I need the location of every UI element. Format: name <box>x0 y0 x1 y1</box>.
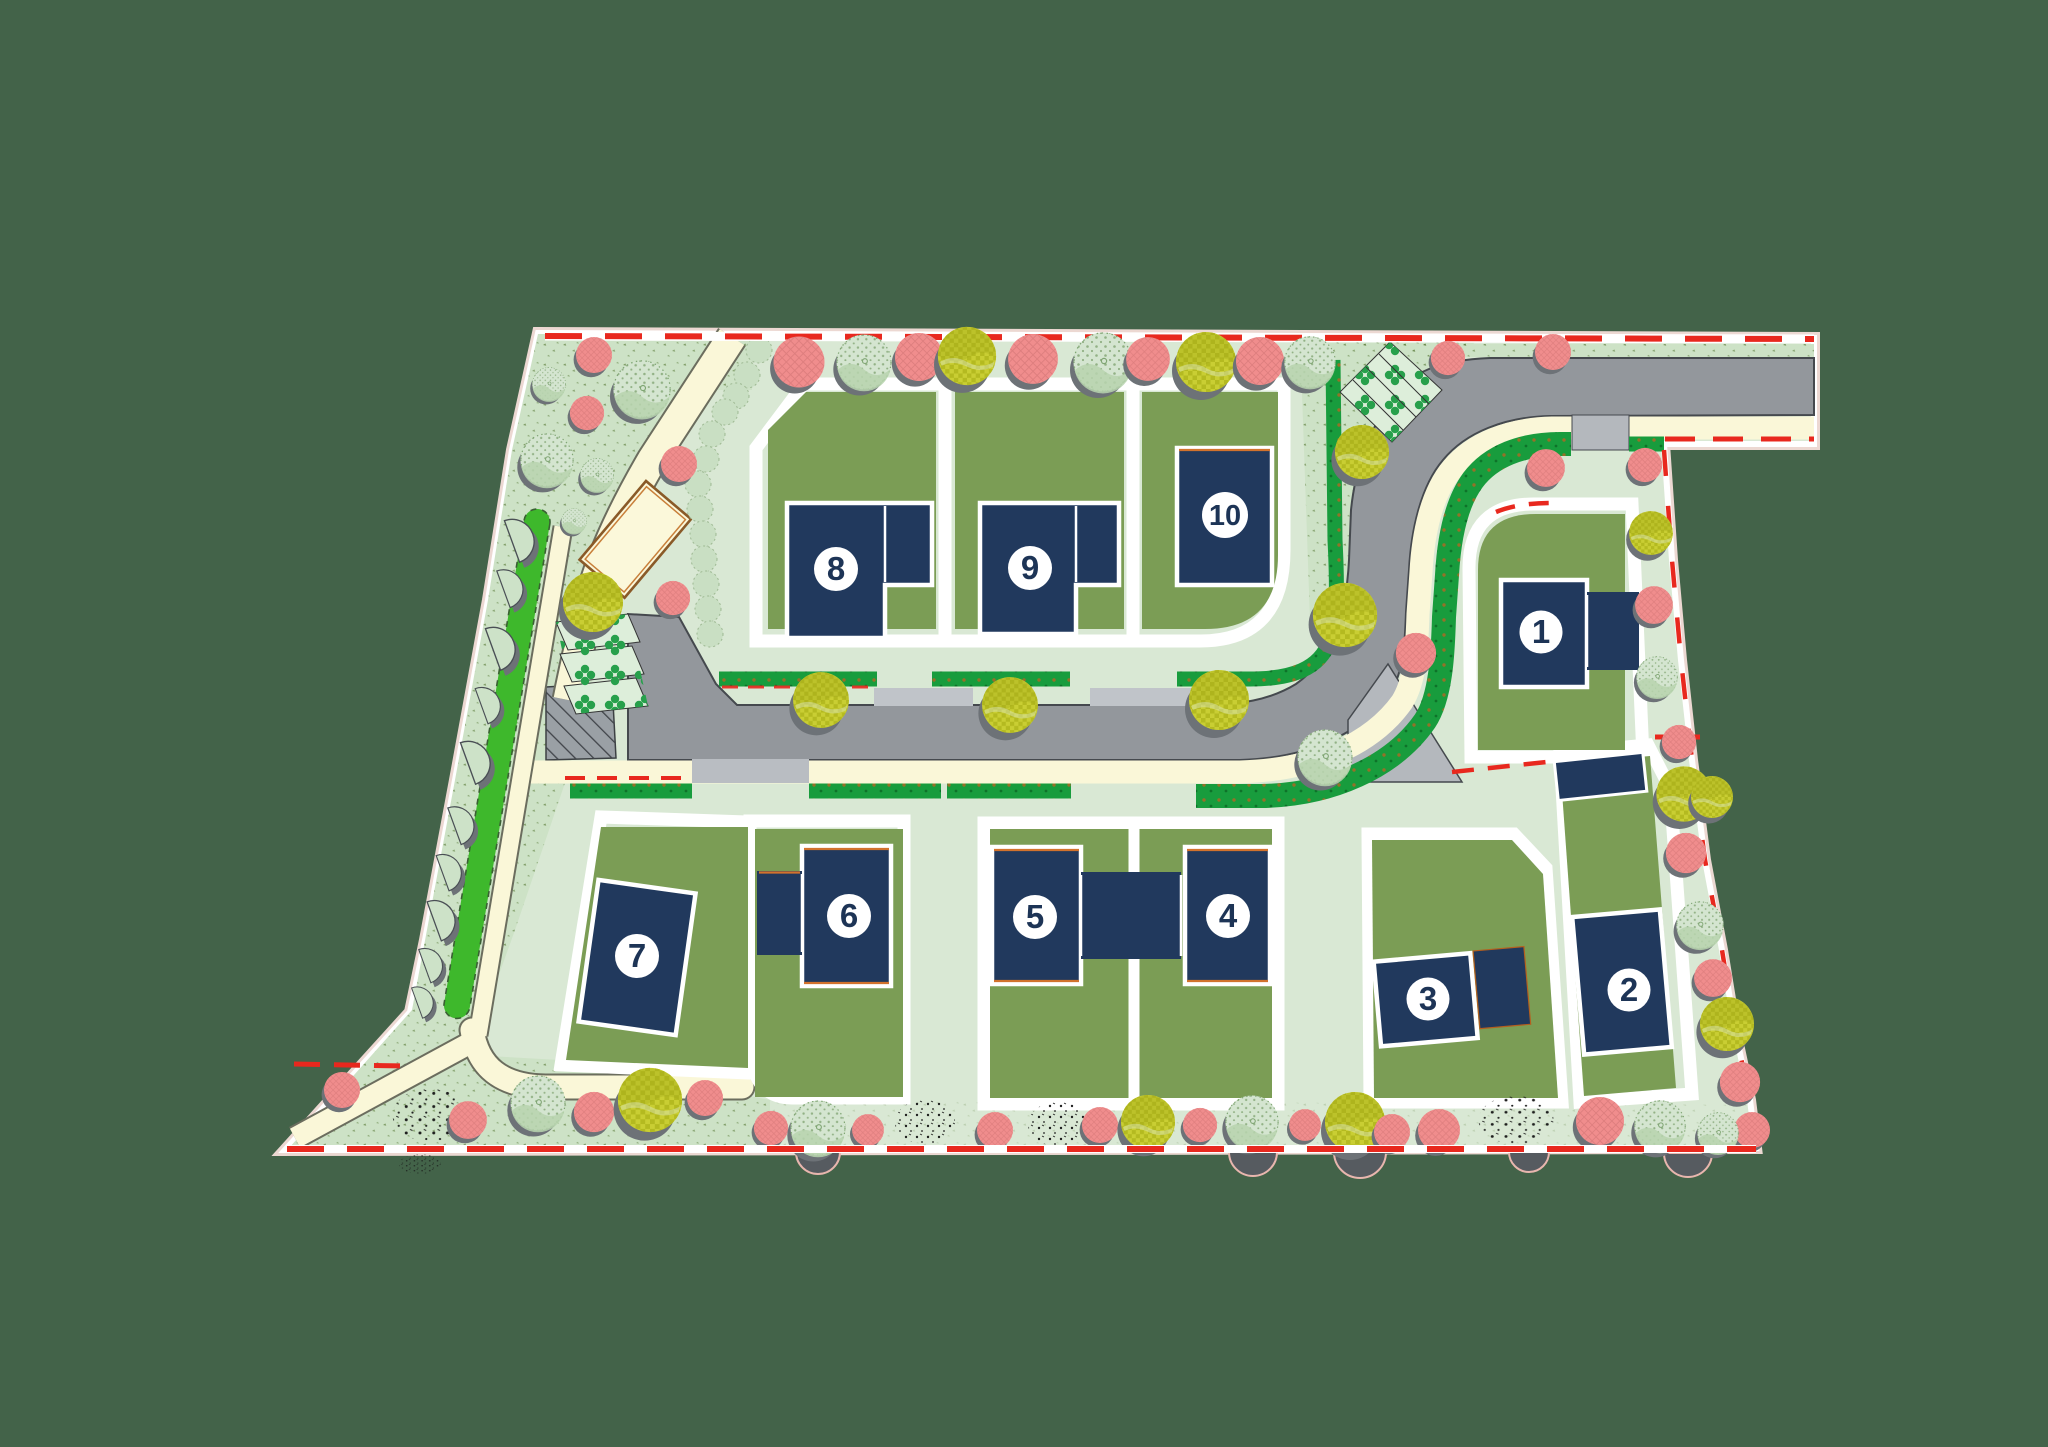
svg-text:10: 10 <box>1209 500 1241 532</box>
svg-text:5: 5 <box>1026 898 1044 935</box>
svg-text:8: 8 <box>827 550 845 587</box>
svg-text:9: 9 <box>1021 549 1039 586</box>
svg-text:3: 3 <box>1419 980 1437 1017</box>
svg-text:2: 2 <box>1620 971 1638 1008</box>
svg-text:7: 7 <box>628 937 646 974</box>
svg-text:6: 6 <box>840 897 858 934</box>
svg-text:1: 1 <box>1532 613 1550 650</box>
svg-text:4: 4 <box>1219 897 1238 934</box>
